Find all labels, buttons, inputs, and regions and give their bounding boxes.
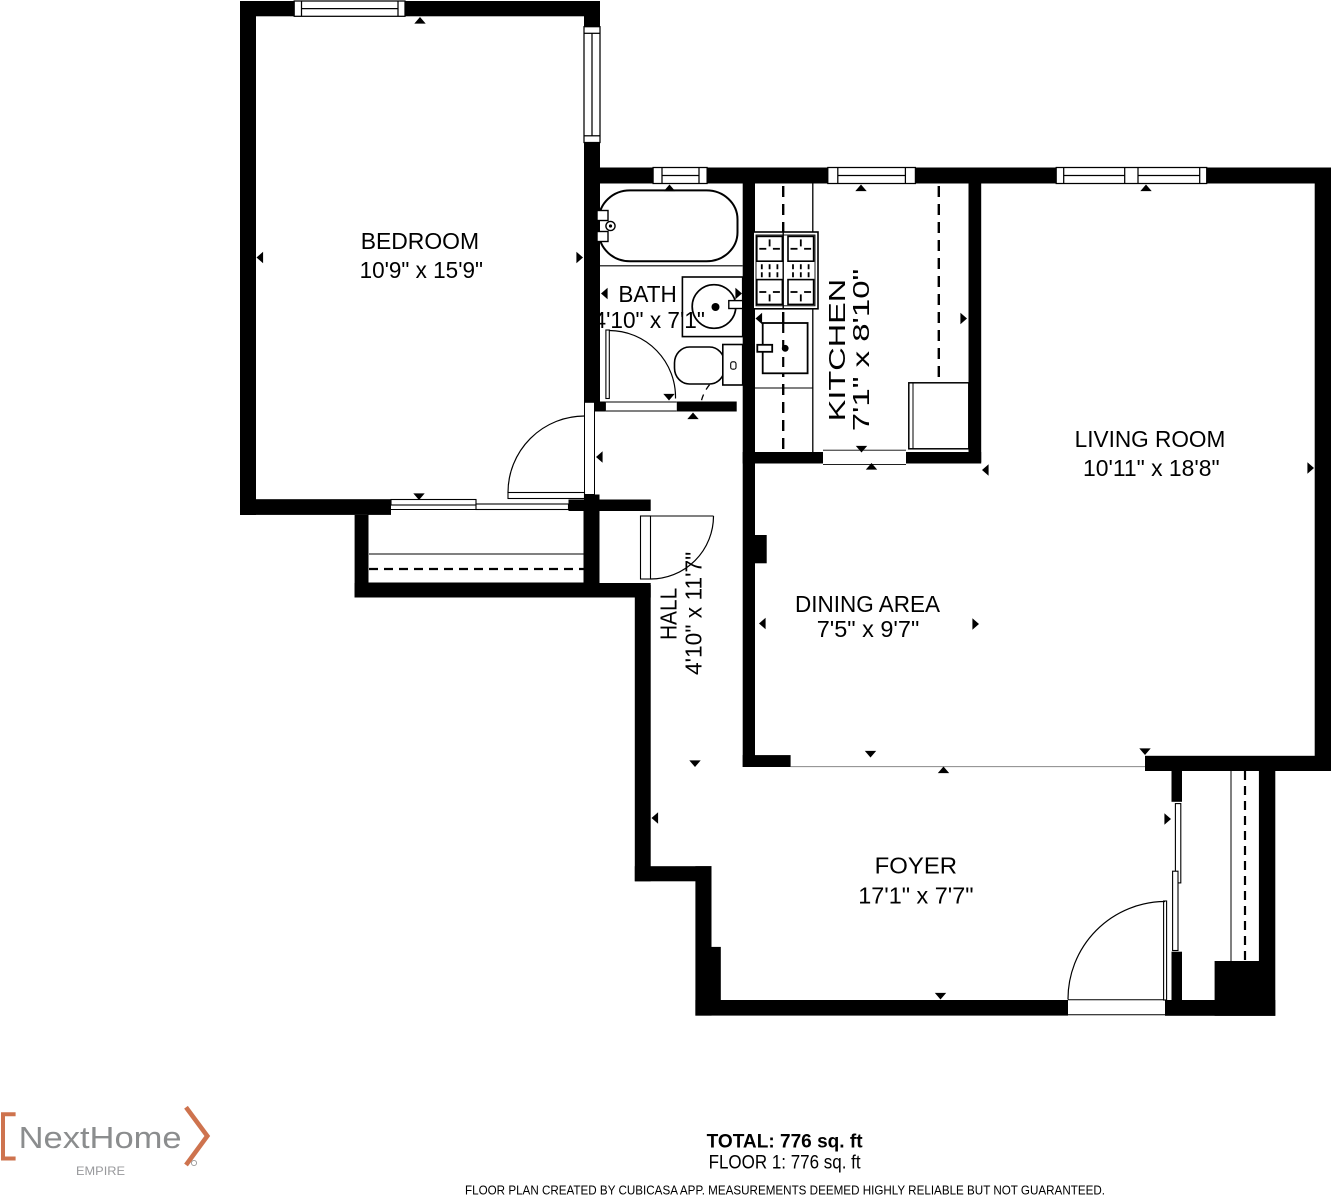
svg-text:HALL: HALL [656,588,682,640]
svg-text:4'10" x 11'7": 4'10" x 11'7" [681,552,707,675]
svg-text:7'5" x 9'7": 7'5" x 9'7" [817,616,920,642]
svg-text:10'11" x 18'8": 10'11" x 18'8" [1083,455,1220,481]
svg-text:FLOOR 1: 776 sq. ft: FLOOR 1: 776 sq. ft [709,1152,861,1174]
svg-text:EMPIRE: EMPIRE [76,1166,125,1178]
svg-text:KITCHEN: KITCHEN [824,279,850,422]
svg-text:LIVING ROOM: LIVING ROOM [1075,426,1226,452]
svg-text:TOTAL: 776 sq. ft: TOTAL: 776 sq. ft [707,1131,863,1153]
svg-text:BATH: BATH [618,281,677,307]
svg-text:4'10" x 7'1": 4'10" x 7'1" [594,307,705,333]
svg-text:FLOOR PLAN CREATED BY CUBICASA: FLOOR PLAN CREATED BY CUBICASA APP. MEAS… [465,1184,1105,1198]
svg-text:17'1" x 7'7": 17'1" x 7'7" [858,883,973,909]
svg-text:FOYER: FOYER [875,853,957,879]
svg-text:10'9" x 15'9": 10'9" x 15'9" [360,257,483,283]
svg-text:BEDROOM: BEDROOM [361,228,479,254]
svg-text:DINING AREA: DINING AREA [795,591,940,617]
svg-text:NextHome: NextHome [19,1120,182,1155]
svg-text:7'1" x 8'10": 7'1" x 8'10" [848,269,874,432]
